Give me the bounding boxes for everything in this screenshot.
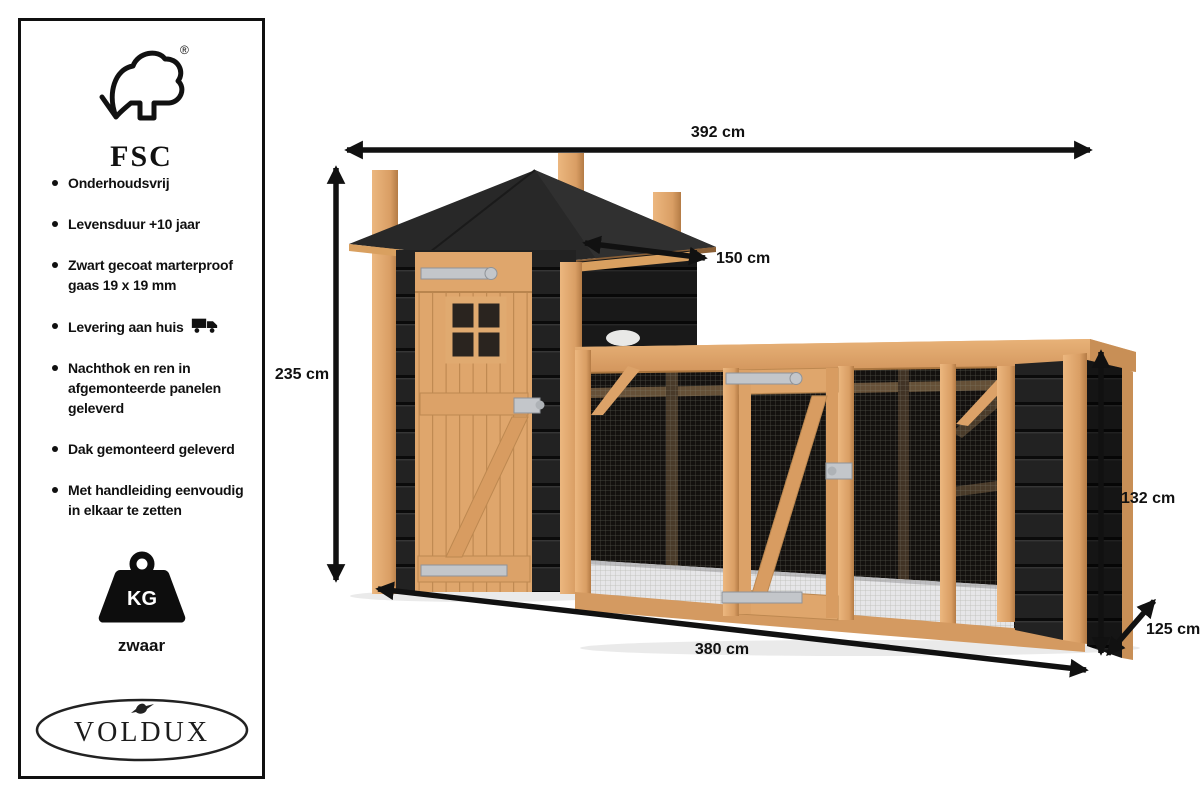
door-hinge-top: [421, 268, 497, 280]
dimension-label-roof-depth: 150 cm: [716, 250, 770, 267]
tower-side-wall: [575, 250, 697, 350]
run-door-jamb-left: [723, 368, 739, 616]
product-spec-image: ® FSC Onderhoudsvrij Levensduur +10 jaar…: [0, 0, 1200, 800]
run-post-left: [575, 350, 591, 608]
tower-front-wall: [396, 250, 582, 594]
coop-diagram: 392 cm 235 cm 150 cm 132 cm 125 cm 380 c…: [0, 0, 1200, 800]
door-window: [449, 300, 503, 360]
dimension-label-run-height: 132 cm: [1121, 490, 1175, 507]
run-corner-trim: [1063, 353, 1087, 644]
dimension-label-total-height: 235 cm: [275, 366, 329, 383]
run-door-latch: [826, 463, 852, 479]
dimension-label-total-width: 392 cm: [691, 124, 745, 141]
tower-door: [415, 252, 545, 592]
dimension-label-run-width: 380 cm: [695, 641, 749, 658]
dimension-label-run-depth: 125 cm: [1146, 621, 1200, 638]
run: [575, 339, 1136, 660]
brand-badge: [606, 330, 640, 346]
door-latch: [514, 398, 545, 413]
run-back-corner-trim: [1122, 368, 1133, 660]
run-door-jamb-right: [838, 366, 854, 620]
door-mid-rail: [420, 393, 528, 415]
run-post-middle: [940, 364, 956, 624]
run-right-end: [997, 353, 1133, 660]
run-door-hinge-top: [726, 373, 802, 385]
run-door-hinge-bottom: [722, 592, 802, 603]
door-hinge-bottom: [421, 565, 507, 576]
run-corner-black-board: [1015, 361, 1063, 640]
